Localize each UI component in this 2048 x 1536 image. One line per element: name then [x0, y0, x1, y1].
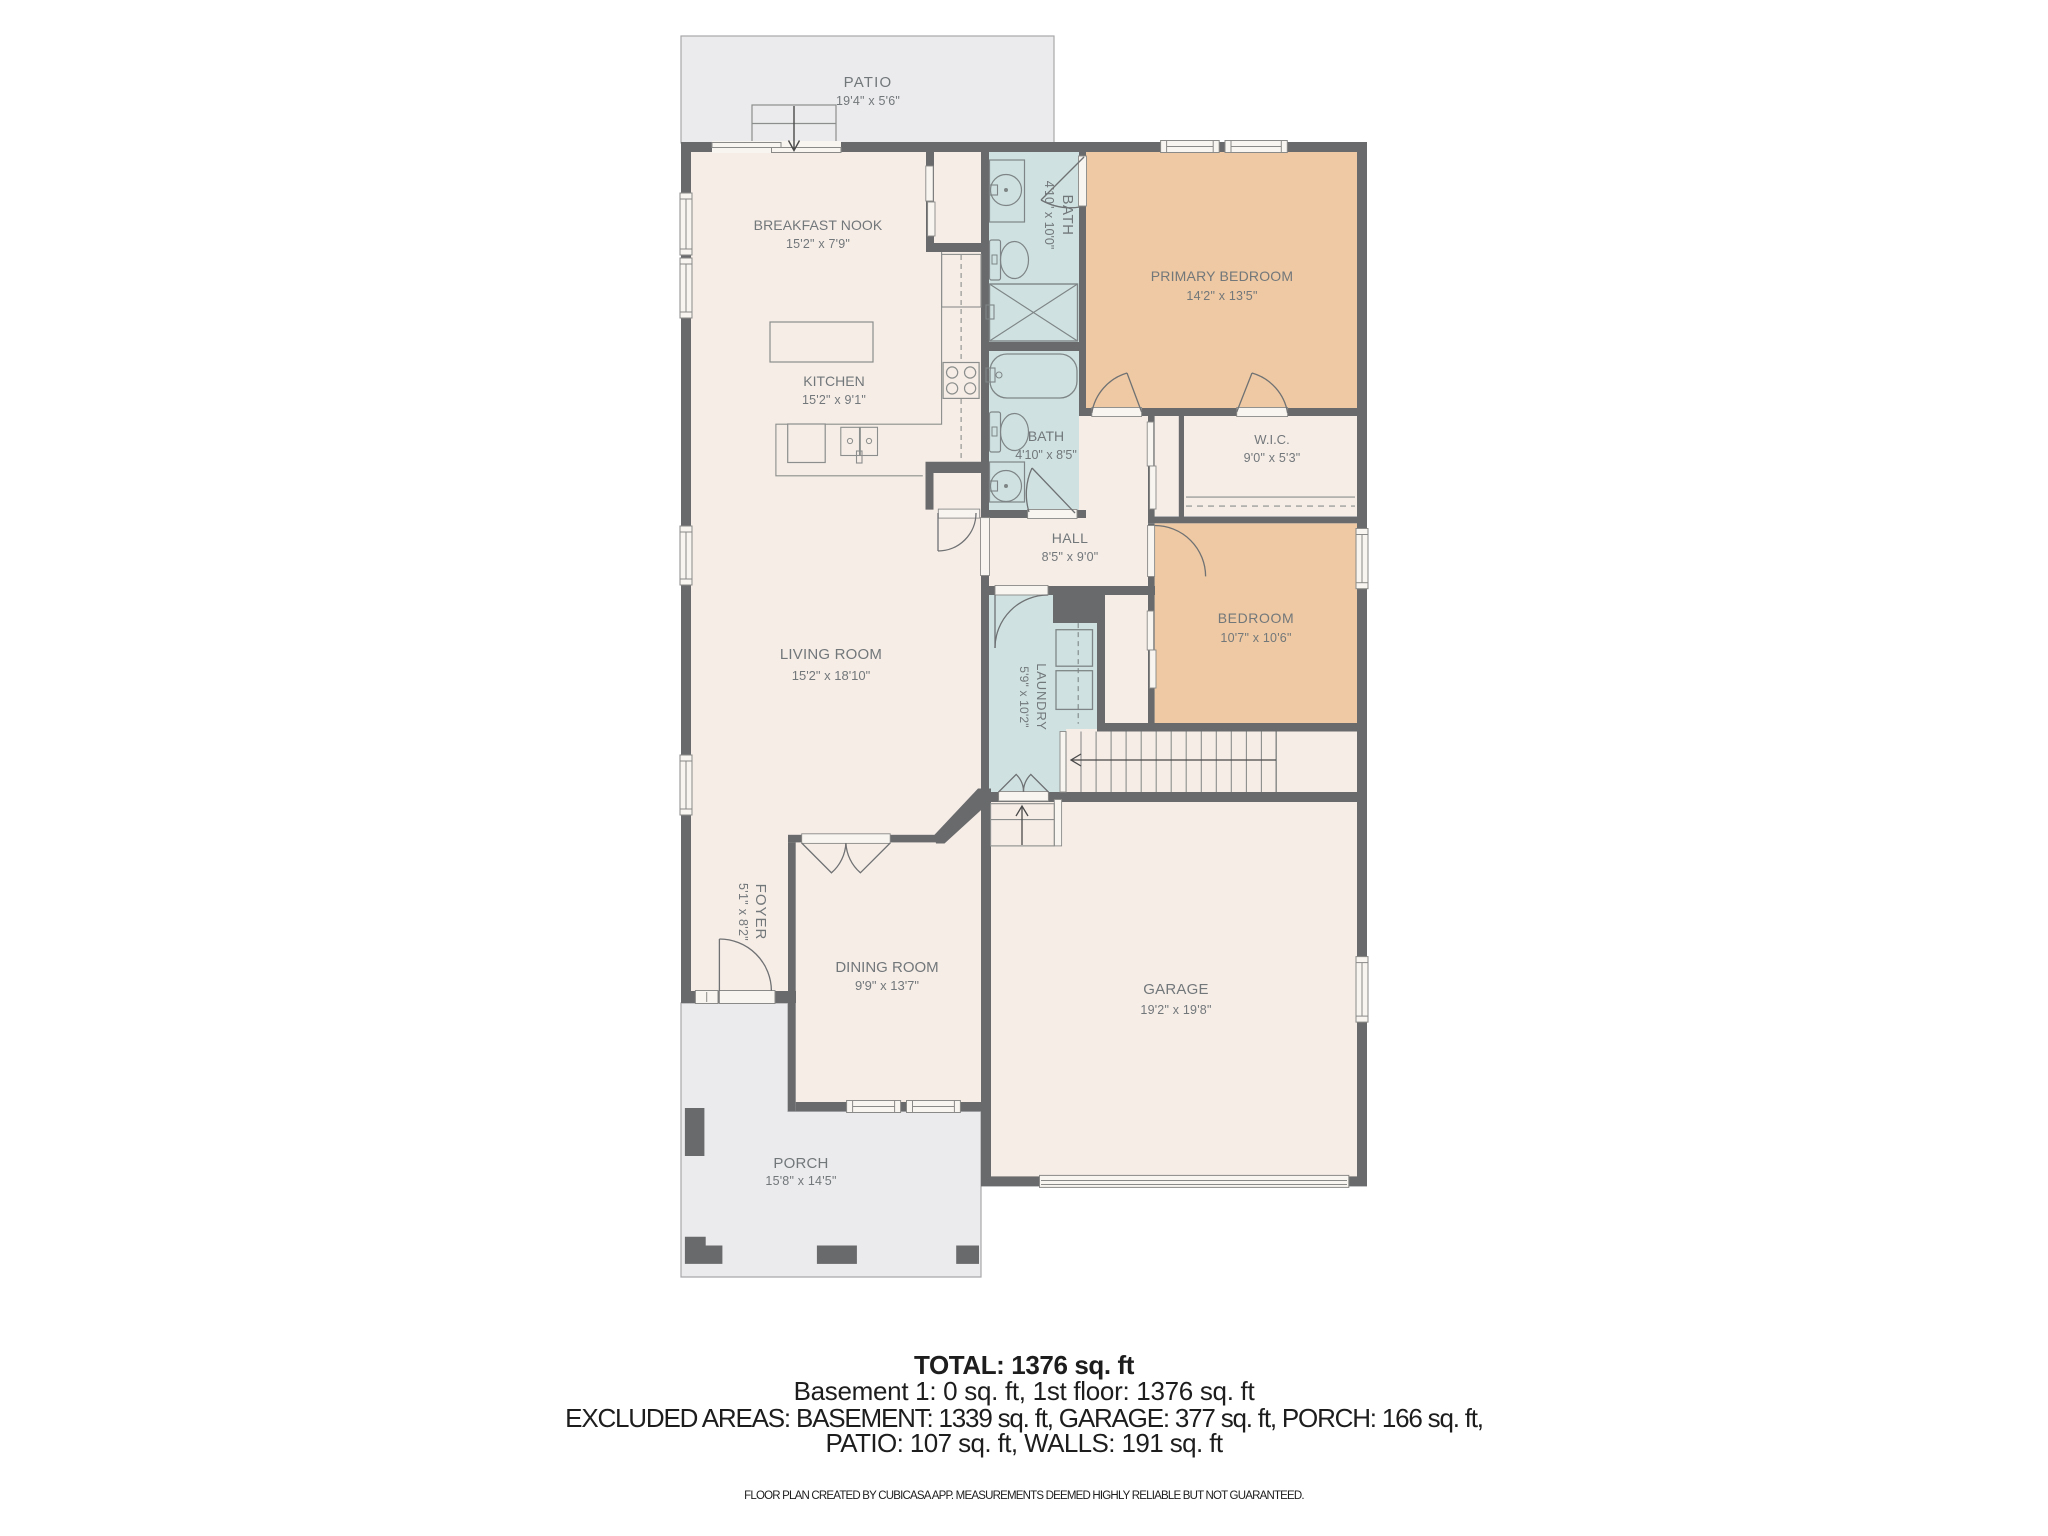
svg-text:LIVING ROOM: LIVING ROOM [780, 646, 882, 663]
svg-text:KITCHEN: KITCHEN [803, 373, 864, 389]
svg-text:FOYER: FOYER [752, 884, 769, 941]
svg-text:PATIO: 107 sq. ft, WALLS: 191: PATIO: 107 sq. ft, WALLS: 191 sq. ft [826, 1428, 1224, 1458]
svg-text:HALL: HALL [1052, 530, 1089, 546]
svg-text:14'2" x 13'5": 14'2" x 13'5" [1186, 289, 1257, 303]
svg-text:9'9" x 13'7": 9'9" x 13'7" [855, 978, 919, 993]
svg-text:19'2" x 19'8": 19'2" x 19'8" [1140, 1003, 1211, 1017]
svg-text:GARAGE: GARAGE [1143, 981, 1208, 998]
svg-text:4'10" x 8'5": 4'10" x 8'5" [1015, 448, 1077, 462]
svg-text:BREAKFAST NOOK: BREAKFAST NOOK [754, 217, 883, 233]
svg-text:W.I.C.: W.I.C. [1254, 432, 1289, 447]
svg-text:9'0" x 5'3": 9'0" x 5'3" [1244, 451, 1301, 465]
svg-text:Basement 1: 0 sq. ft, 1st floo: Basement 1: 0 sq. ft, 1st floor: 1376 sq… [794, 1376, 1256, 1406]
svg-text:5'1" x 8'2": 5'1" x 8'2" [736, 883, 750, 941]
svg-text:4'10" x 10'0": 4'10" x 10'0" [1042, 181, 1056, 250]
svg-text:BATH: BATH [1028, 428, 1064, 444]
svg-text:15'2" x 18'10": 15'2" x 18'10" [792, 668, 871, 683]
svg-text:19'4" x 5'6": 19'4" x 5'6" [836, 94, 900, 108]
svg-text:PORCH: PORCH [773, 1155, 828, 1172]
svg-text:BATH: BATH [1059, 195, 1076, 236]
svg-text:8'5" x 9'0": 8'5" x 9'0" [1042, 550, 1099, 564]
svg-text:DINING ROOM: DINING ROOM [835, 959, 938, 976]
svg-text:FLOOR PLAN CREATED BY CUBICASA: FLOOR PLAN CREATED BY CUBICASA APP. MEAS… [744, 1490, 1304, 1502]
svg-text:10'7" x 10'6": 10'7" x 10'6" [1220, 631, 1291, 645]
svg-text:15'2" x 9'1": 15'2" x 9'1" [802, 393, 866, 407]
svg-text:BEDROOM: BEDROOM [1218, 610, 1295, 626]
svg-text:5'9" x 10'2": 5'9" x 10'2" [1017, 666, 1031, 728]
svg-text:15'8" x 14'5": 15'8" x 14'5" [765, 1174, 836, 1188]
svg-text:PRIMARY BEDROOM: PRIMARY BEDROOM [1151, 268, 1294, 284]
svg-text:PATIO: PATIO [844, 74, 893, 91]
svg-text:LAUNDRY: LAUNDRY [1034, 663, 1049, 731]
svg-text:15'2" x 7'9": 15'2" x 7'9" [786, 237, 850, 251]
